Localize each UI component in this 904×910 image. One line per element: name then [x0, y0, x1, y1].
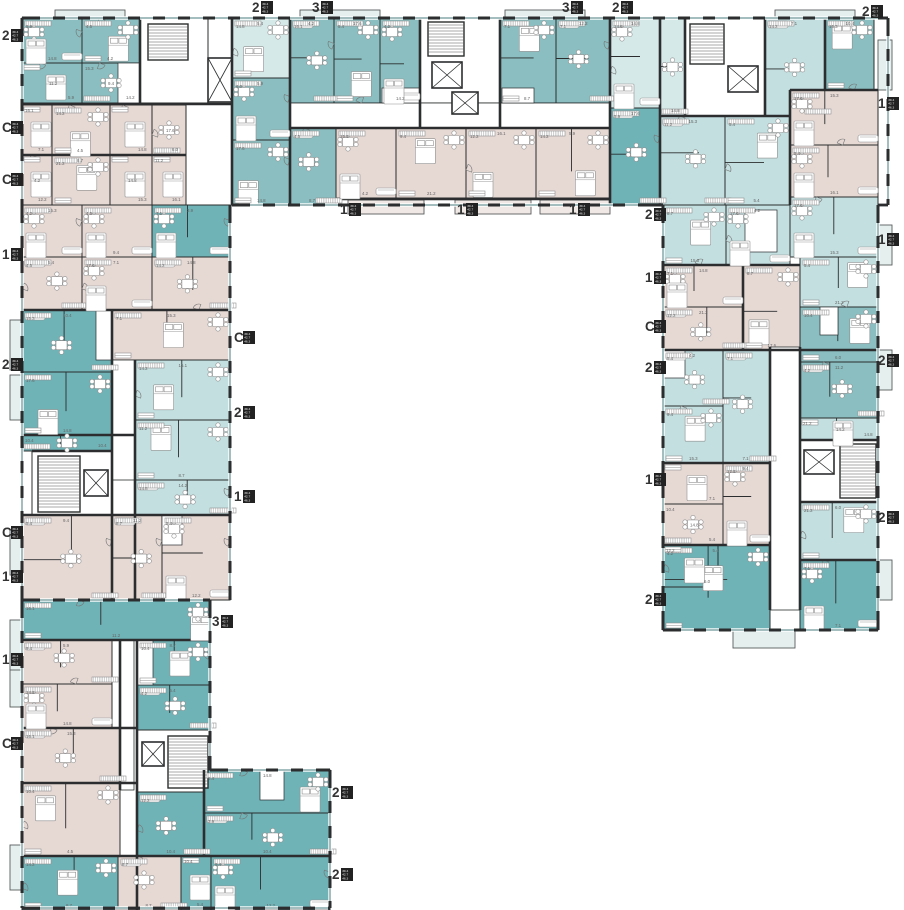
svg-text:5.4: 5.4 — [729, 122, 736, 127]
svg-text:9.4: 9.4 — [743, 466, 750, 471]
svg-text:8.7: 8.7 — [667, 211, 674, 216]
svg-text:16.1: 16.1 — [172, 197, 181, 202]
svg-text:5.4: 5.4 — [208, 776, 215, 781]
svg-text:14.8: 14.8 — [63, 428, 72, 433]
svg-text:46.3: 46.3 — [888, 242, 894, 246]
svg-text:12.2: 12.2 — [667, 313, 676, 318]
svg-text:46.3: 46.3 — [655, 482, 661, 486]
svg-text:17.6: 17.6 — [166, 128, 175, 133]
svg-text:15.3: 15.3 — [829, 24, 838, 29]
svg-text:2: 2 — [878, 353, 886, 368]
svg-text:8.7: 8.7 — [122, 862, 129, 867]
svg-text:12.2: 12.2 — [579, 21, 588, 26]
svg-text:46.3: 46.3 — [12, 367, 18, 371]
svg-text:14.8: 14.8 — [671, 108, 680, 113]
svg-text:5.4: 5.4 — [713, 548, 720, 553]
svg-text:46.3: 46.3 — [12, 257, 18, 261]
svg-text:11.2: 11.2 — [139, 426, 148, 431]
svg-text:21.2: 21.2 — [804, 508, 813, 513]
svg-text:14.8: 14.8 — [614, 24, 623, 29]
svg-text:5.9: 5.9 — [26, 24, 33, 29]
svg-text:3: 3 — [212, 614, 220, 629]
svg-text:9.4: 9.4 — [63, 518, 70, 523]
svg-text:4.2: 4.2 — [362, 191, 369, 196]
svg-text:14.2: 14.2 — [56, 111, 65, 116]
svg-text:15.3: 15.3 — [48, 208, 57, 213]
svg-text:46.3: 46.3 — [244, 499, 250, 503]
svg-text:4.5: 4.5 — [86, 24, 93, 29]
svg-text:1: 1 — [340, 202, 348, 217]
svg-text:3.9: 3.9 — [187, 208, 194, 213]
svg-text:46.3: 46.3 — [655, 602, 661, 606]
svg-text:46.3: 46.3 — [342, 877, 348, 881]
svg-text:2: 2 — [2, 28, 10, 43]
svg-text:7.1: 7.1 — [38, 147, 45, 152]
svg-text:46.3: 46.3 — [888, 520, 894, 524]
svg-text:4.2: 4.2 — [804, 368, 811, 373]
svg-text:5.4: 5.4 — [709, 537, 716, 542]
svg-text:5.4: 5.4 — [667, 356, 674, 361]
svg-text:46.3: 46.3 — [262, 10, 268, 14]
svg-text:1: 1 — [878, 232, 886, 247]
svg-text:4.2: 4.2 — [26, 211, 33, 216]
svg-text:9.4: 9.4 — [400, 134, 407, 139]
svg-text:46.3: 46.3 — [572, 10, 578, 14]
svg-text:12.2: 12.2 — [38, 197, 47, 202]
svg-text:15.3: 15.3 — [689, 456, 698, 461]
svg-text:17.6: 17.6 — [794, 203, 803, 208]
svg-text:6.0: 6.0 — [236, 84, 243, 89]
svg-text:C: C — [2, 736, 12, 751]
svg-text:11.2: 11.2 — [664, 122, 673, 127]
svg-text:7.1: 7.1 — [835, 623, 842, 628]
svg-text:17.6: 17.6 — [353, 21, 362, 26]
svg-text:12.2: 12.2 — [727, 469, 736, 474]
svg-text:9.4: 9.4 — [108, 81, 115, 86]
svg-text:2: 2 — [332, 785, 340, 800]
svg-text:3: 3 — [562, 0, 570, 15]
svg-text:4.2: 4.2 — [107, 56, 114, 61]
svg-text:1: 1 — [2, 652, 10, 667]
svg-text:9.4: 9.4 — [26, 646, 33, 651]
svg-text:46.3: 46.3 — [655, 329, 661, 333]
svg-text:7.1: 7.1 — [113, 260, 120, 265]
svg-text:17.6: 17.6 — [86, 263, 95, 268]
svg-text:21.2: 21.2 — [803, 421, 812, 426]
svg-text:46.3: 46.3 — [579, 212, 585, 216]
svg-text:C: C — [234, 330, 244, 345]
svg-text:15.3: 15.3 — [830, 93, 839, 98]
svg-text:14.2: 14.2 — [156, 263, 165, 268]
svg-text:5.9: 5.9 — [569, 131, 576, 136]
svg-text:2: 2 — [252, 0, 260, 15]
svg-text:46.3: 46.3 — [342, 795, 348, 799]
svg-text:7.1: 7.1 — [804, 566, 811, 571]
svg-text:46.3: 46.3 — [467, 212, 473, 216]
svg-text:C: C — [2, 525, 12, 540]
svg-text:14.8: 14.8 — [631, 21, 640, 26]
svg-text:17.6: 17.6 — [768, 343, 777, 348]
svg-text:10.4: 10.4 — [184, 859, 193, 864]
svg-text:14.8: 14.8 — [128, 178, 137, 183]
svg-text:11.2: 11.2 — [112, 633, 121, 638]
svg-text:6.0: 6.0 — [835, 505, 842, 510]
svg-text:6.0: 6.0 — [704, 579, 711, 584]
svg-text:9.4: 9.4 — [113, 250, 120, 255]
svg-text:1: 1 — [2, 247, 10, 262]
svg-text:2: 2 — [234, 405, 242, 420]
svg-text:21.2: 21.2 — [699, 310, 708, 315]
svg-text:10.4: 10.4 — [63, 313, 72, 318]
svg-text:4.5: 4.5 — [86, 211, 93, 216]
svg-text:46.3: 46.3 — [222, 624, 228, 628]
svg-text:4.2: 4.2 — [141, 691, 148, 696]
svg-text:11.2: 11.2 — [133, 518, 142, 523]
svg-text:46.3: 46.3 — [244, 340, 250, 344]
svg-text:4.2: 4.2 — [308, 21, 315, 26]
svg-text:7.1: 7.1 — [709, 496, 716, 501]
svg-text:14.2: 14.2 — [126, 95, 135, 100]
svg-text:46.3: 46.3 — [12, 746, 18, 750]
svg-text:46.3: 46.3 — [655, 217, 661, 221]
svg-text:21.2: 21.2 — [835, 300, 844, 305]
svg-text:16.1: 16.1 — [25, 108, 34, 113]
svg-text:14.8: 14.8 — [257, 198, 266, 203]
svg-text:15.3: 15.3 — [340, 134, 349, 139]
svg-text:16.1: 16.1 — [179, 363, 188, 368]
svg-text:14.8: 14.8 — [263, 773, 272, 778]
svg-text:8.7: 8.7 — [77, 158, 84, 163]
svg-text:14.2: 14.2 — [396, 96, 405, 101]
svg-text:7.1: 7.1 — [560, 24, 567, 29]
svg-text:4.2: 4.2 — [34, 178, 41, 183]
svg-text:5.4: 5.4 — [754, 198, 761, 203]
svg-text:21.2: 21.2 — [427, 191, 436, 196]
svg-text:9.4: 9.4 — [215, 862, 222, 867]
svg-text:14.2: 14.2 — [769, 24, 778, 29]
svg-text:46.3: 46.3 — [655, 280, 661, 284]
svg-text:46.3: 46.3 — [888, 106, 894, 110]
svg-text:46.3: 46.3 — [622, 10, 628, 14]
svg-text:2: 2 — [612, 0, 620, 15]
svg-text:21.2: 21.2 — [56, 161, 65, 166]
svg-text:5.9: 5.9 — [614, 114, 621, 119]
svg-text:16.1: 16.1 — [294, 24, 303, 29]
svg-text:1: 1 — [878, 96, 886, 111]
svg-text:15.3: 15.3 — [85, 66, 94, 71]
svg-text:15.3: 15.3 — [138, 197, 147, 202]
svg-text:C: C — [2, 120, 12, 135]
svg-text:5.4: 5.4 — [166, 521, 173, 526]
svg-text:10.4: 10.4 — [167, 849, 176, 854]
svg-text:14.8: 14.8 — [138, 147, 147, 152]
svg-text:5.4: 5.4 — [257, 21, 264, 26]
svg-text:5.4: 5.4 — [26, 521, 33, 526]
svg-text:10.4: 10.4 — [666, 507, 675, 512]
svg-text:7.1: 7.1 — [791, 21, 798, 26]
svg-text:46.3: 46.3 — [12, 38, 18, 42]
svg-text:1: 1 — [645, 270, 653, 285]
svg-text:14.8: 14.8 — [48, 56, 57, 61]
svg-text:7.1: 7.1 — [156, 211, 163, 216]
svg-text:2: 2 — [645, 207, 653, 222]
svg-text:14.8: 14.8 — [236, 24, 245, 29]
svg-text:8.7: 8.7 — [524, 96, 531, 101]
svg-text:14.2: 14.2 — [836, 427, 845, 432]
svg-text:C: C — [645, 319, 655, 334]
svg-text:1: 1 — [457, 202, 465, 217]
svg-text:14.2: 14.2 — [540, 134, 549, 139]
svg-text:7.1: 7.1 — [667, 271, 674, 276]
svg-text:9.4: 9.4 — [667, 412, 674, 417]
svg-text:5.4: 5.4 — [197, 902, 204, 907]
svg-text:8.7: 8.7 — [179, 473, 186, 478]
svg-text:16.1: 16.1 — [26, 606, 35, 611]
svg-text:14.8: 14.8 — [690, 523, 699, 528]
svg-text:46.3: 46.3 — [12, 130, 18, 134]
svg-text:10.4: 10.4 — [846, 21, 855, 26]
svg-text:5.4: 5.4 — [170, 688, 177, 693]
svg-text:14.8: 14.8 — [187, 260, 196, 265]
svg-text:12.2: 12.2 — [666, 548, 675, 553]
svg-text:5.4: 5.4 — [804, 263, 811, 268]
svg-text:1: 1 — [234, 489, 242, 504]
svg-text:17.6: 17.6 — [631, 111, 640, 116]
svg-text:5.9: 5.9 — [257, 81, 264, 86]
svg-text:7.1: 7.1 — [727, 356, 734, 361]
svg-text:17.6: 17.6 — [730, 211, 739, 216]
svg-text:5.9: 5.9 — [68, 95, 75, 100]
svg-text:4.5: 4.5 — [294, 134, 301, 139]
svg-text:46.3: 46.3 — [12, 182, 18, 186]
svg-text:14.8: 14.8 — [699, 268, 708, 273]
svg-text:16.1: 16.1 — [830, 190, 839, 195]
svg-text:2: 2 — [2, 357, 10, 372]
svg-text:6.0: 6.0 — [835, 355, 842, 360]
svg-text:14.2: 14.2 — [179, 483, 188, 488]
svg-text:17.6: 17.6 — [794, 96, 803, 101]
svg-text:10.4: 10.4 — [804, 313, 813, 318]
svg-text:46.3: 46.3 — [12, 579, 18, 583]
svg-text:3: 3 — [312, 0, 320, 15]
svg-text:10.4: 10.4 — [98, 443, 107, 448]
svg-text:14.8: 14.8 — [139, 486, 148, 491]
svg-text:5.9: 5.9 — [63, 643, 70, 648]
svg-text:15.3: 15.3 — [689, 119, 698, 124]
svg-text:46.3: 46.3 — [655, 370, 661, 374]
svg-text:4.2: 4.2 — [689, 353, 696, 358]
svg-text:8.7: 8.7 — [309, 198, 316, 203]
svg-text:46.3: 46.3 — [872, 14, 878, 18]
svg-text:15.3: 15.3 — [691, 258, 700, 263]
svg-text:7.1: 7.1 — [504, 24, 511, 29]
svg-text:8.7: 8.7 — [116, 521, 123, 526]
svg-text:11.2: 11.2 — [835, 365, 844, 370]
svg-text:7.1: 7.1 — [743, 456, 750, 461]
svg-text:14.8: 14.8 — [63, 721, 72, 726]
svg-text:1: 1 — [2, 569, 10, 584]
svg-text:1: 1 — [645, 472, 653, 487]
svg-text:10.4: 10.4 — [25, 438, 34, 443]
svg-text:16.1: 16.1 — [26, 734, 35, 739]
svg-text:7.1: 7.1 — [116, 316, 123, 321]
svg-text:11.2: 11.2 — [155, 158, 164, 163]
svg-text:8.7: 8.7 — [747, 271, 754, 276]
svg-text:15.3: 15.3 — [167, 313, 176, 318]
svg-text:46.3: 46.3 — [322, 10, 328, 14]
svg-text:12.2: 12.2 — [141, 798, 150, 803]
svg-text:46.3: 46.3 — [12, 535, 18, 539]
svg-text:16.1: 16.1 — [497, 131, 506, 136]
svg-text:4.5: 4.5 — [26, 263, 33, 268]
svg-text:1: 1 — [569, 202, 577, 217]
svg-text:12.2: 12.2 — [192, 593, 201, 598]
svg-text:14.2: 14.2 — [26, 690, 35, 695]
svg-text:4.5: 4.5 — [67, 849, 74, 854]
svg-text:10.4: 10.4 — [141, 646, 150, 651]
svg-text:14.8: 14.8 — [864, 432, 873, 437]
svg-text:12.2: 12.2 — [470, 134, 479, 139]
svg-text:46.3: 46.3 — [888, 363, 894, 367]
svg-text:46.3: 46.3 — [350, 212, 356, 216]
svg-text:5.4: 5.4 — [338, 24, 345, 29]
svg-text:46.3: 46.3 — [244, 415, 250, 419]
svg-text:4.2: 4.2 — [754, 208, 761, 213]
svg-text:C: C — [2, 172, 12, 187]
svg-text:2: 2 — [645, 592, 653, 607]
svg-text:4.2: 4.2 — [384, 24, 391, 29]
svg-text:3.9: 3.9 — [208, 819, 215, 824]
svg-text:11.2: 11.2 — [49, 81, 58, 86]
svg-text:15.3: 15.3 — [26, 316, 35, 321]
svg-text:15.3: 15.3 — [830, 250, 839, 255]
svg-text:10.4: 10.4 — [26, 789, 35, 794]
svg-text:2: 2 — [332, 867, 340, 882]
svg-text:14.2: 14.2 — [139, 366, 148, 371]
svg-text:46.3: 46.3 — [12, 662, 18, 666]
svg-text:4.5: 4.5 — [77, 148, 84, 153]
svg-text:17.6: 17.6 — [236, 146, 245, 151]
svg-text:15.3: 15.3 — [67, 731, 76, 736]
svg-text:2: 2 — [645, 360, 653, 375]
svg-text:2: 2 — [862, 4, 870, 19]
svg-text:17.6: 17.6 — [26, 378, 35, 383]
svg-text:2: 2 — [878, 510, 886, 525]
svg-text:14.2: 14.2 — [26, 862, 35, 867]
svg-text:5.4: 5.4 — [794, 151, 801, 156]
svg-text:5.4: 5.4 — [48, 260, 55, 265]
svg-text:6.0: 6.0 — [172, 147, 179, 152]
svg-text:8.7: 8.7 — [170, 643, 177, 648]
svg-text:10.4: 10.4 — [263, 849, 272, 854]
